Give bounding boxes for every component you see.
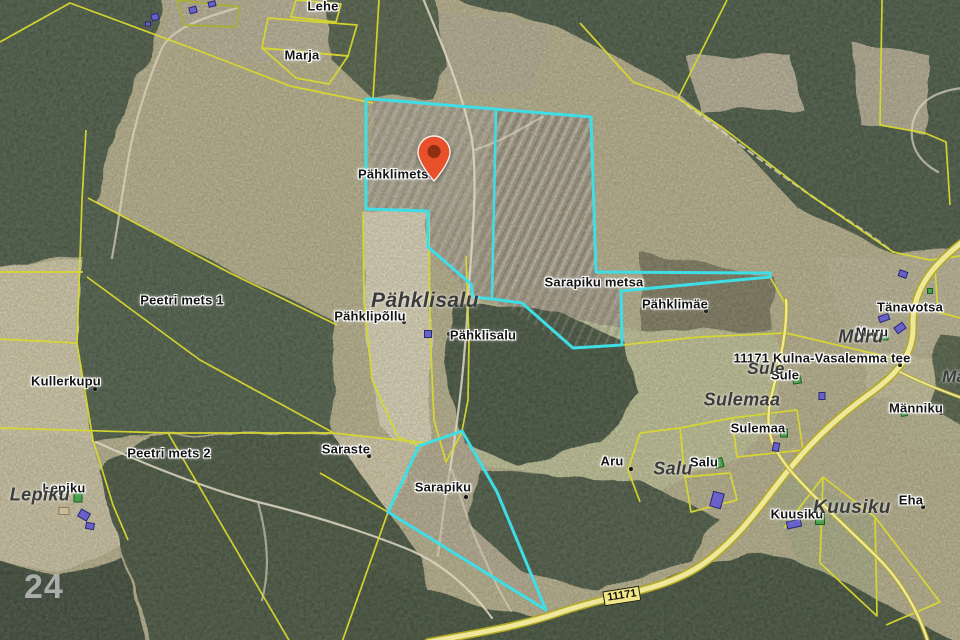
location-marker-pin[interactable] (416, 134, 452, 184)
marker-pin-icon (416, 134, 452, 184)
terrain-layer (0, 0, 960, 640)
satellite-map[interactable]: LeheMarjaPähklimetsaPeetri mets 1Kullerk… (0, 0, 960, 640)
watermark: 24 (24, 568, 64, 607)
